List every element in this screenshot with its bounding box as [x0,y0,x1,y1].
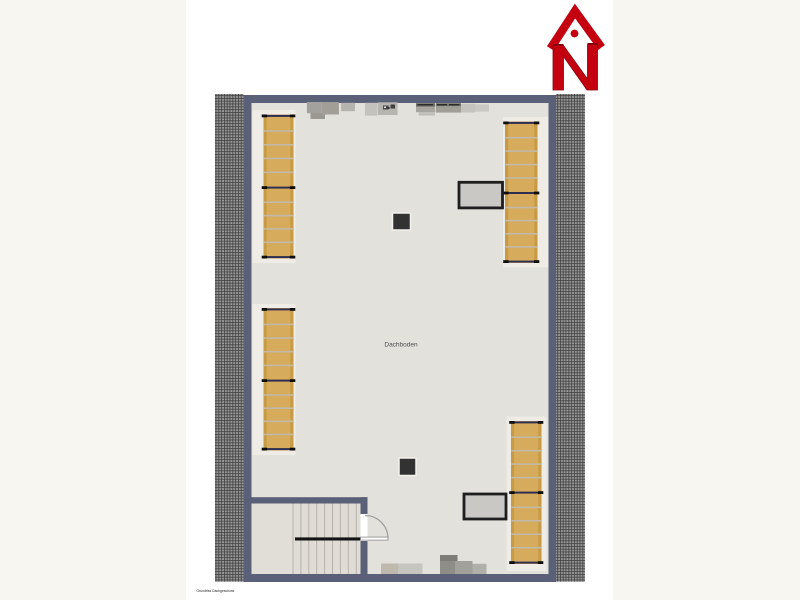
svg-text:Dachboden: Dachboden [384,342,418,349]
svg-text:Grundriss Dachgeschoss: Grundriss Dachgeschoss [197,589,235,593]
